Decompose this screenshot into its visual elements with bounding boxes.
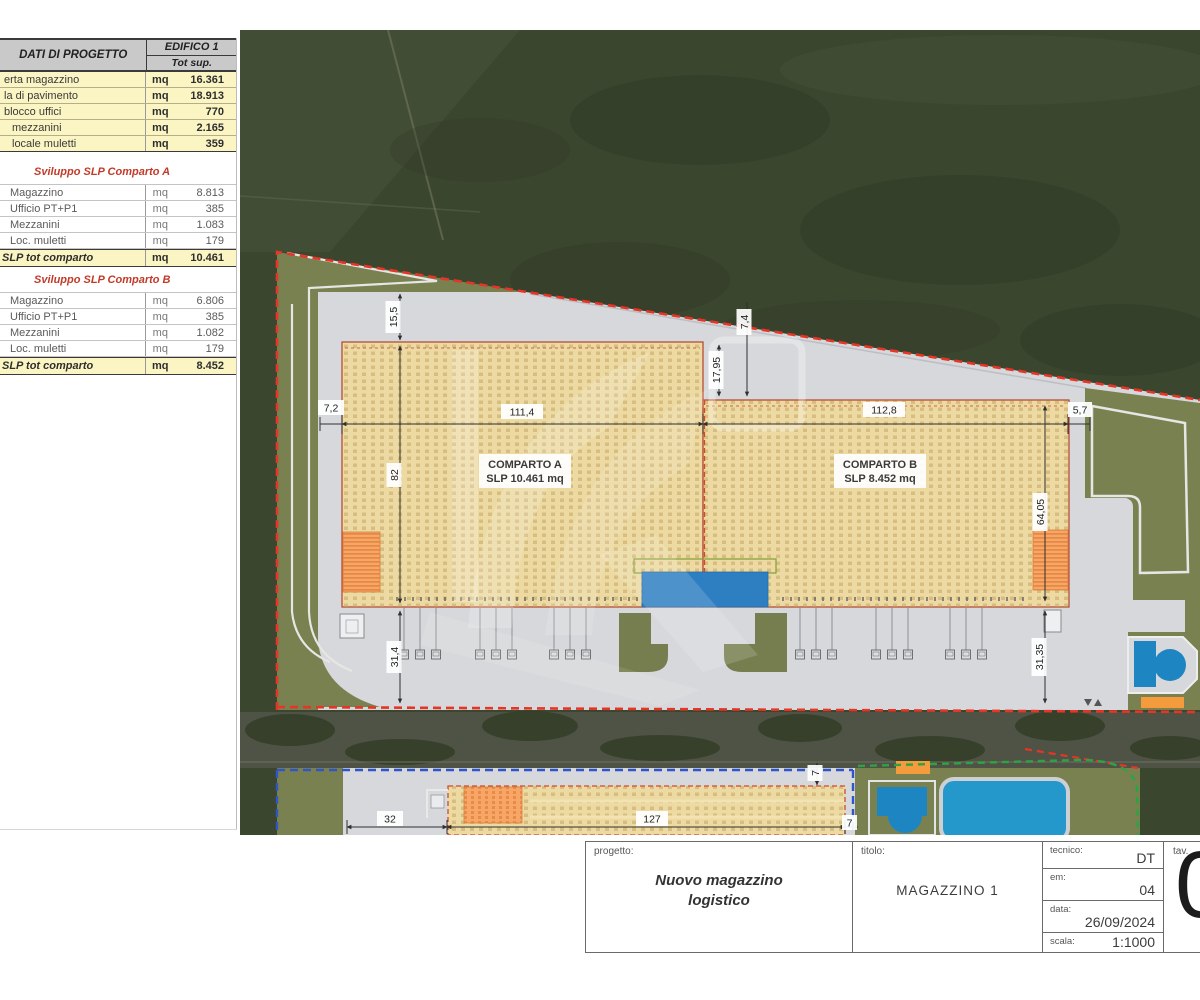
table-row: locale muletti mq 359 — [0, 136, 237, 152]
comparto-b-name: COMPARTO B — [843, 459, 917, 471]
comparto-a-slp: SLP 10.461 mq — [486, 473, 563, 485]
title-block: progetto: Nuovo magazzino logistico tito… — [585, 841, 1200, 953]
total-row-comparto-b: SLP tot comparto mq 8.452 — [0, 357, 237, 375]
dim-7-vert: 7 — [810, 770, 822, 776]
table-row: Magazzino mq 6.806 — [0, 292, 237, 309]
dim-31-35: 31,35 — [1034, 644, 1046, 670]
comparto-a-name: COMPARTO A — [488, 459, 562, 471]
em-label: em: — [1043, 869, 1163, 883]
tecnico-row: tecnico: DT — [1043, 842, 1163, 869]
dim-112-8: 112,8 — [871, 405, 897, 417]
progetto-cell: progetto: Nuovo magazzino logistico — [586, 842, 853, 952]
tecnico-value: DT — [1136, 850, 1155, 866]
table-row: Ufficio PT+P1 mq 385 — [0, 309, 237, 325]
panel-divider — [236, 38, 237, 830]
water-tank — [877, 787, 927, 816]
data-value: 26/09/2024 — [1085, 914, 1155, 930]
panel-bottom-line — [0, 829, 237, 830]
comparto-b-slp: SLP 8.452 mq — [844, 473, 915, 485]
dim-64-05: 64,05 — [1035, 499, 1047, 525]
table-row: Mezzanini mq 1.083 — [0, 217, 237, 233]
table-title: DATI DI PROGETTO — [0, 40, 147, 70]
total-row-comparto-a: SLP tot comparto mq 10.461 — [0, 249, 237, 267]
project-data-panel: DATI DI PROGETTO EDIFICO 1 Tot sup. erta… — [0, 38, 237, 375]
data-label: data: — [1043, 901, 1163, 915]
tot-sup-header: Tot sup. — [147, 56, 236, 71]
dim-32: 32 — [384, 814, 396, 826]
progetto-value: Nuovo magazzino logistico — [586, 871, 852, 910]
dim-7-horiz: 7 — [847, 818, 853, 830]
table-row: Mezzanini mq 1.082 — [0, 325, 237, 341]
building-header: EDIFICO 1 — [147, 40, 236, 56]
em-row: em: 04 — [1043, 869, 1163, 901]
sprinkler-reservoir — [1154, 649, 1186, 681]
table-row: Ufficio PT+P1 mq 385 — [0, 201, 237, 217]
site-plan: 15,5 82 31,4 64,05 31,35 7,4 17,95 7 7,2… — [240, 30, 1200, 835]
tav-number: 0 — [1175, 838, 1200, 933]
titolo-label: titolo: — [853, 842, 1042, 857]
dim-31-4: 31,4 — [389, 647, 401, 668]
table-row: Loc. muletti mq 179 — [0, 233, 237, 249]
table-row: mezzanini mq 2.165 — [0, 120, 237, 136]
table-row: la di pavimento mq 18.913 — [0, 88, 237, 104]
retention-basin — [941, 779, 1068, 835]
progetto-label: progetto: — [586, 842, 852, 857]
second-parcel — [277, 761, 1140, 835]
dim-7-4: 7,4 — [739, 315, 751, 330]
titolo-value: MAGAZZINO 1 — [853, 883, 1042, 898]
dim-111-4: 111,4 — [510, 407, 535, 419]
dim-17-95: 17,95 — [711, 357, 723, 383]
dim-7-2: 7,2 — [324, 403, 339, 415]
dim-15-5: 15,5 — [388, 307, 400, 328]
em-value: 04 — [1139, 882, 1155, 898]
data-row: data: 26/09/2024 — [1043, 901, 1163, 933]
titolo-cell: titolo: MAGAZZINO 1 — [853, 842, 1043, 952]
section-header-comparto-b: Sviluppo SLP Comparto B — [0, 272, 237, 287]
dim-82: 82 — [389, 469, 401, 481]
table-header: DATI DI PROGETTO EDIFICO 1 Tot sup. — [0, 38, 237, 72]
scala-row: scala: 1:1000 — [1043, 933, 1163, 952]
dim-5-7: 5,7 — [1073, 405, 1088, 417]
table-row: Loc. muletti mq 179 — [0, 341, 237, 357]
meta-cell: tecnico: DT em: 04 data: 26/09/2024 scal… — [1043, 842, 1164, 952]
table-row: Magazzino mq 8.813 — [0, 184, 237, 201]
table-row: erta magazzino mq 16.361 — [0, 72, 237, 88]
table-row: blocco uffici mq 770 — [0, 104, 237, 120]
section-header-comparto-a: Sviluppo SLP Comparto A — [0, 164, 237, 179]
dim-127: 127 — [643, 814, 661, 826]
sprinkler-tank — [1134, 641, 1156, 687]
tav-cell: tav. 0 — [1164, 842, 1200, 952]
scala-value: 1:1000 — [1112, 934, 1155, 950]
